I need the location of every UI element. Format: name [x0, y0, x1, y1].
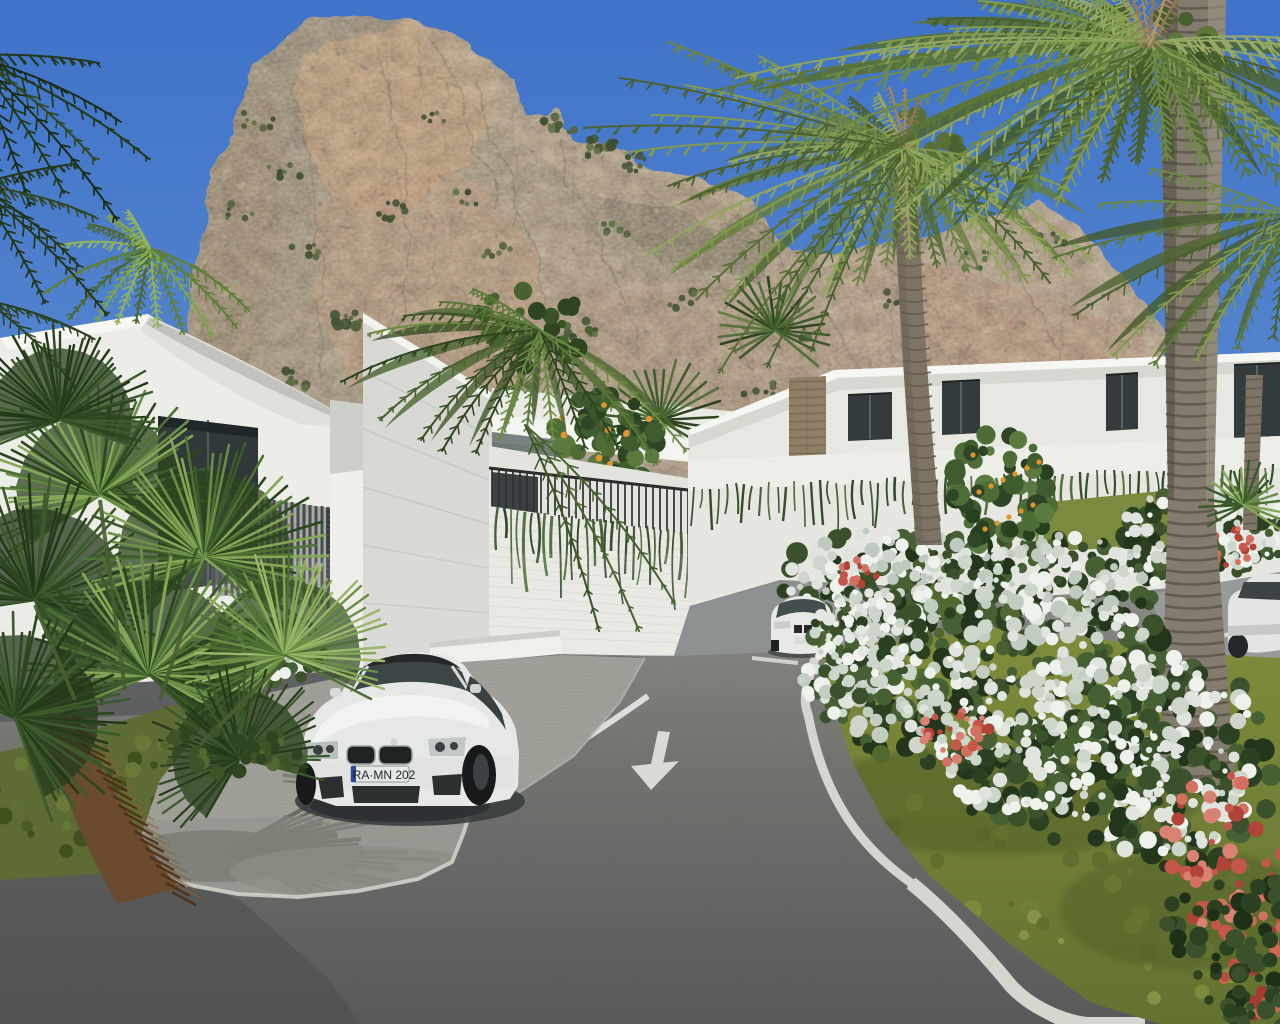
svg-text:RA·MN 202: RA·MN 202	[353, 768, 416, 782]
